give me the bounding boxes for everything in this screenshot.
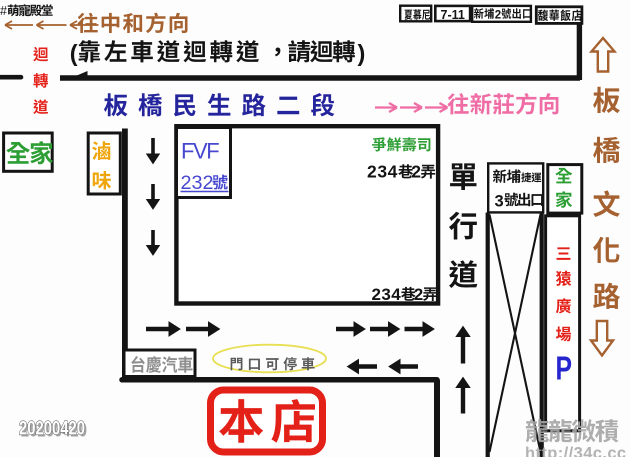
svg-text:232: 232 [181, 172, 214, 194]
svg-text:234: 234 [372, 285, 402, 304]
svg-text:234: 234 [367, 162, 398, 182]
svg-text:20200420: 20200420 [19, 419, 85, 440]
svg-text:http://34c.cc: http://34c.cc [525, 445, 627, 457]
svg-text:P: P [556, 349, 573, 386]
svg-text:2: 2 [411, 162, 421, 182]
svg-text:2: 2 [495, 10, 501, 22]
svg-text:2: 2 [414, 285, 423, 304]
svg-text:#: # [0, 4, 7, 18]
svg-text:(: ( [70, 40, 78, 66]
svg-text:7-11: 7-11 [441, 8, 465, 22]
svg-text:): ) [358, 40, 366, 66]
svg-text:FVF: FVF [181, 139, 219, 164]
svg-text:3: 3 [495, 193, 504, 211]
